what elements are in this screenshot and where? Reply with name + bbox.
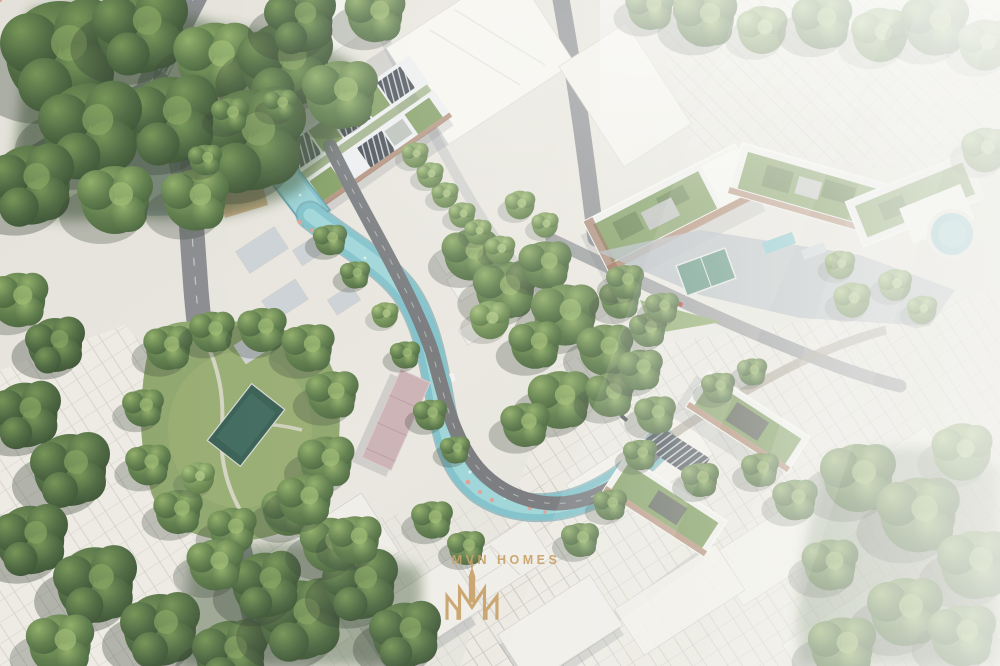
fog-haze-overlay xyxy=(0,0,1000,666)
masterplan-aerial-render: MVN HOMES xyxy=(0,0,1000,666)
scene-svg xyxy=(0,0,1000,666)
